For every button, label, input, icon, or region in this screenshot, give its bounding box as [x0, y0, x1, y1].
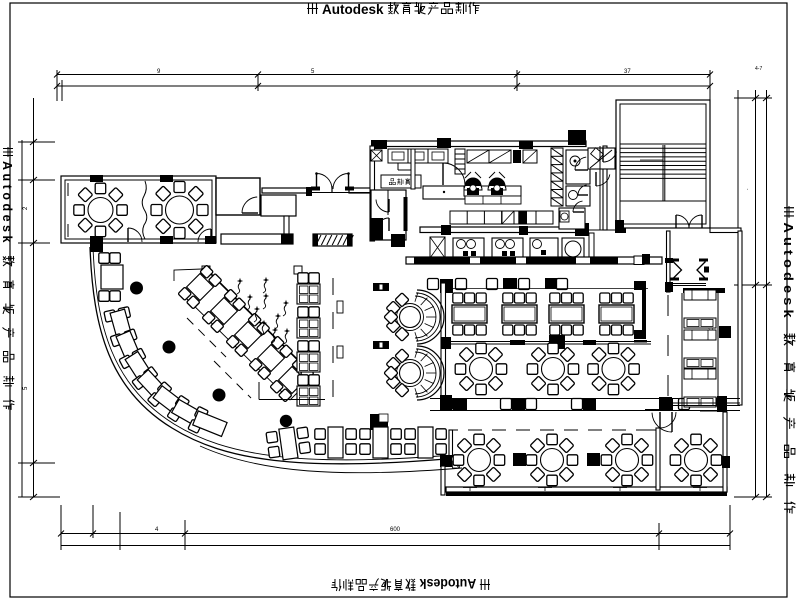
svg-text:4-7: 4-7 [755, 66, 762, 72]
svg-text:37: 37 [624, 69, 631, 75]
svg-text:600: 600 [390, 527, 401, 533]
